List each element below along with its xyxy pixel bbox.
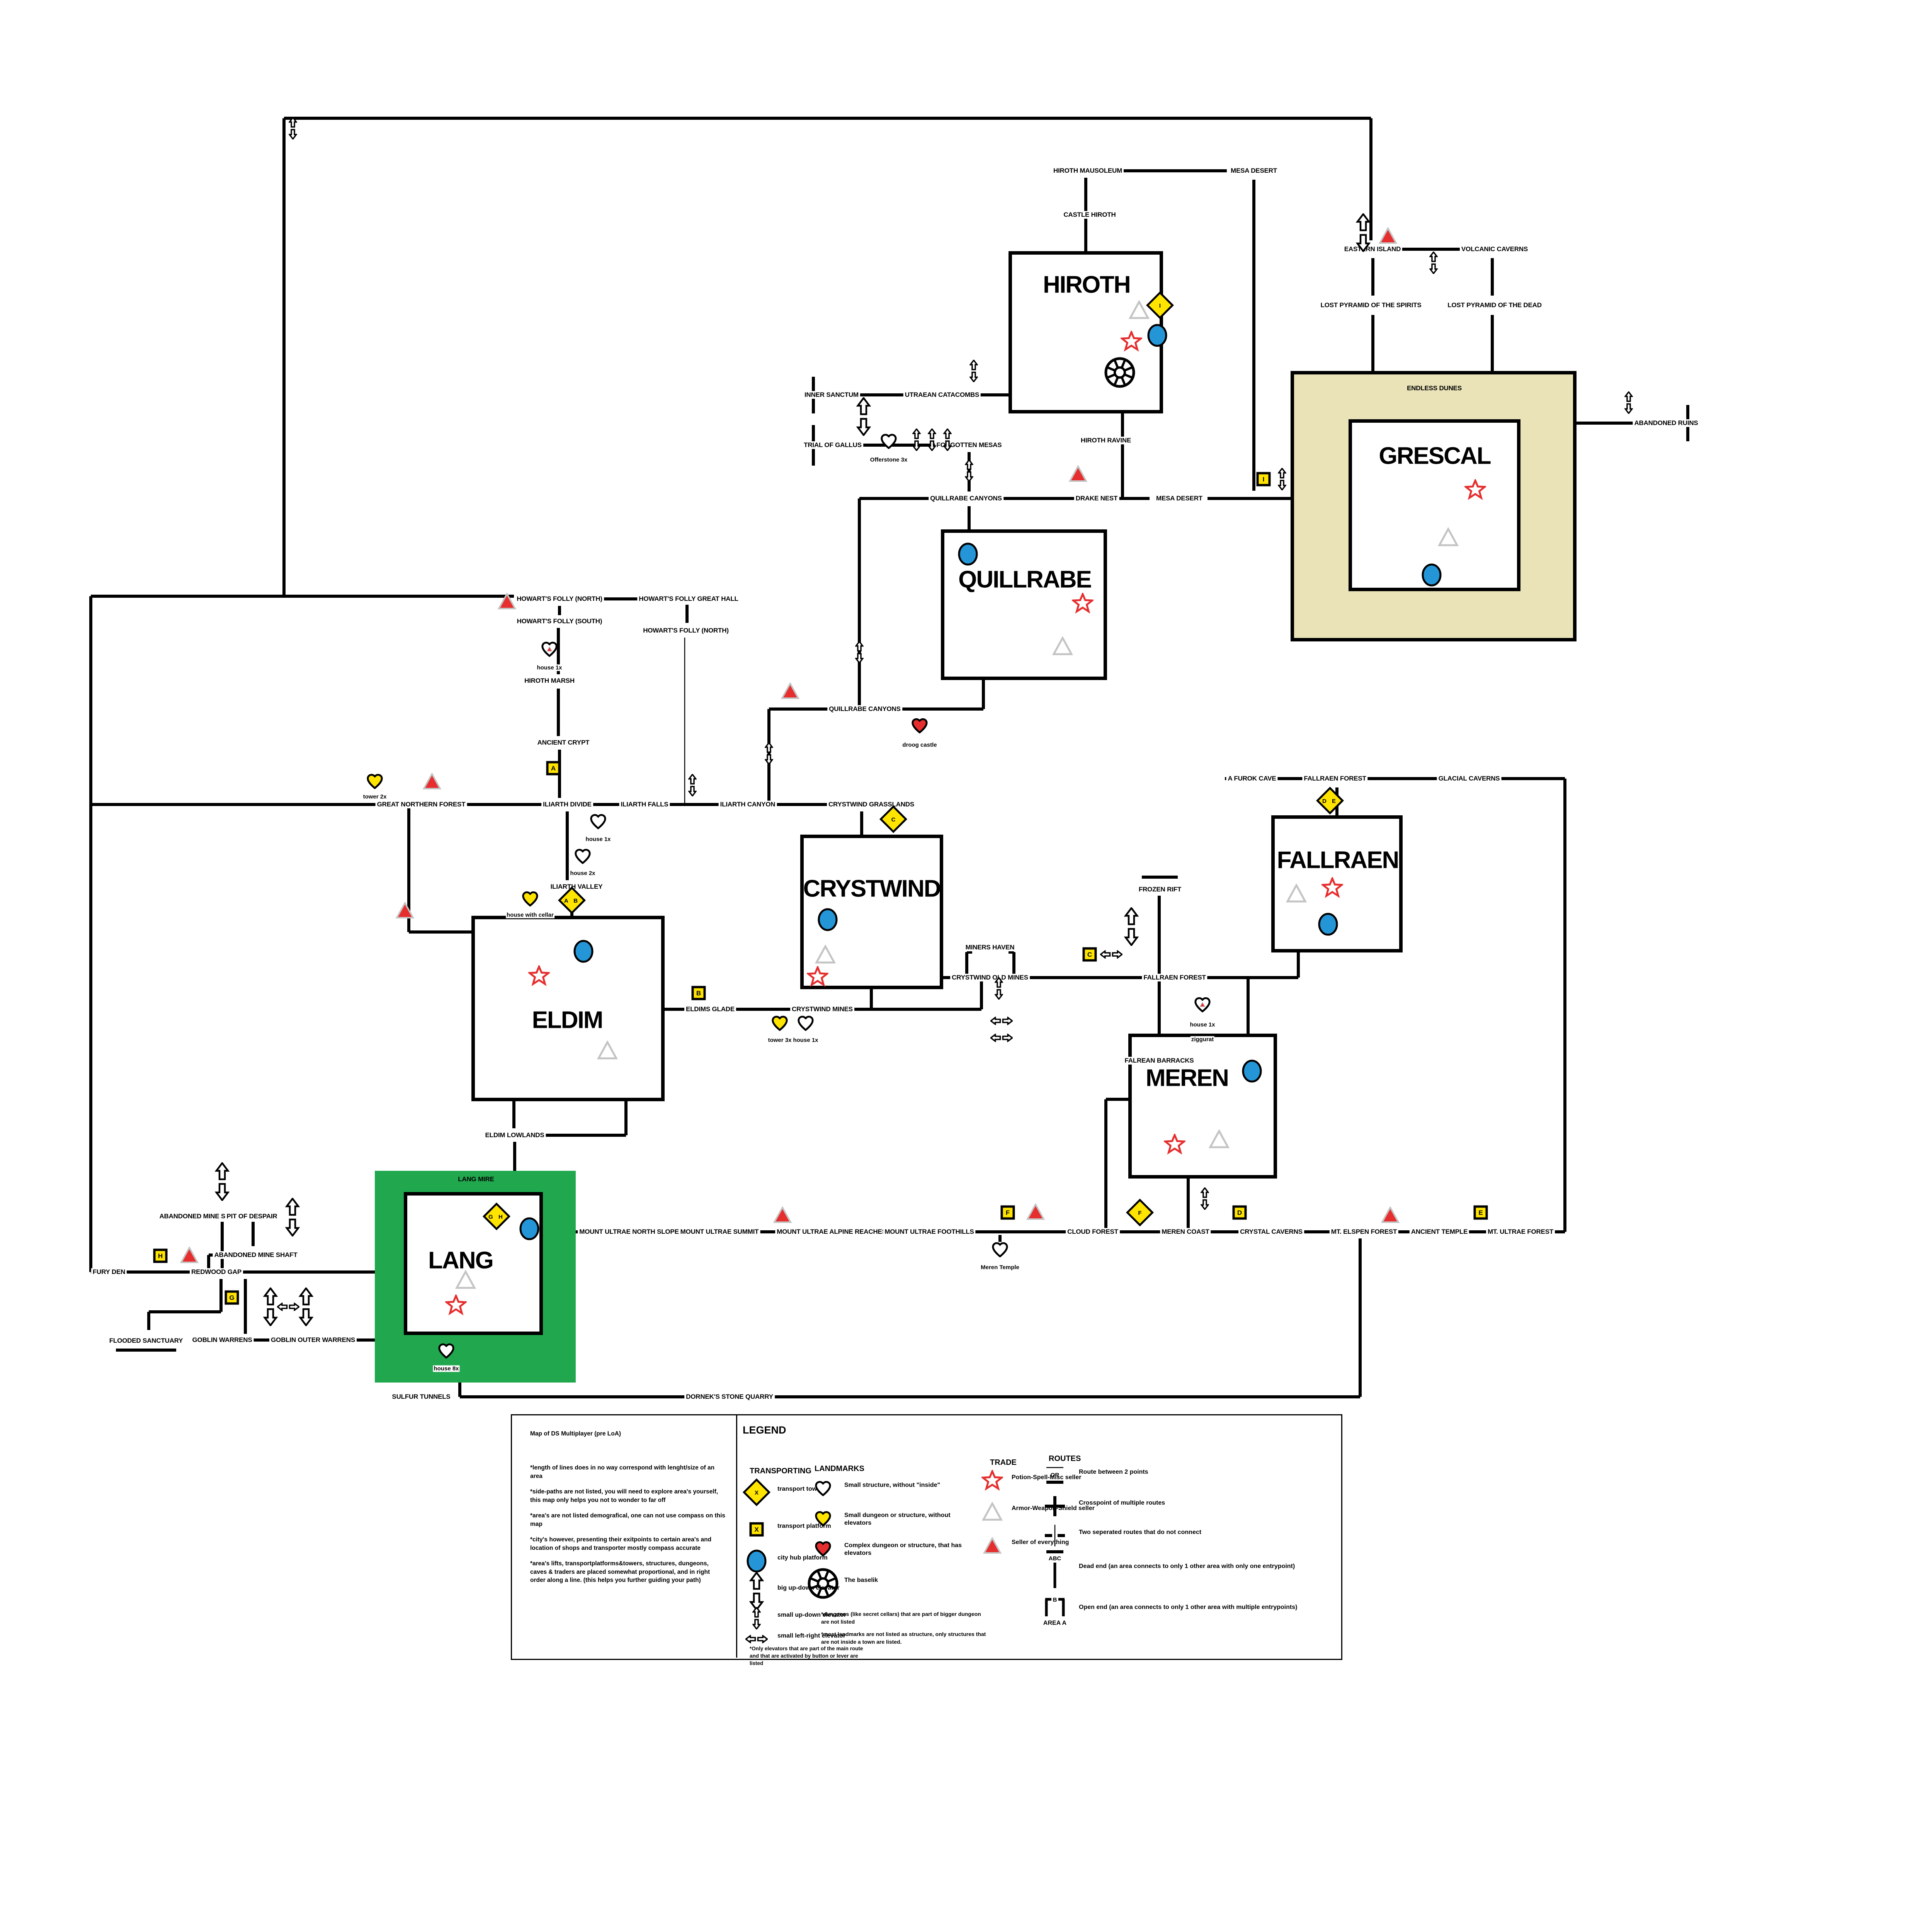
small-ud-icon: [765, 742, 773, 765]
map-label: HOWART'S FOLLY GREAT HALL: [637, 595, 740, 603]
svg-text:B: B: [696, 990, 701, 997]
map-label: LANG MIRE: [456, 1175, 496, 1183]
map-label: CASTLE HIROTH: [1062, 211, 1117, 219]
legend-title: LEGEND: [743, 1424, 786, 1436]
map-label: FALREAN BARRACKS: [1123, 1057, 1195, 1065]
legend-trade-triangle-gray-icon: [982, 1502, 1003, 1521]
svg-text:F: F: [1138, 1210, 1141, 1216]
small-ud-icon: [1278, 468, 1286, 490]
square-icon: A: [546, 761, 561, 776]
legend-trade-header: TRADE: [990, 1458, 1017, 1467]
triangle-red-icon: [1379, 227, 1397, 244]
small-lr-icon: [990, 1034, 1013, 1042]
map-label: HOWART'S FOLLY (SOUTH): [515, 617, 604, 625]
triangle-red-icon: [396, 902, 414, 919]
legend-transporting-diamond-icon: X: [742, 1478, 771, 1507]
circle-icon: [1147, 323, 1168, 347]
legend-routes-label: Open end (an area connects to only 1 oth…: [1079, 1604, 1326, 1611]
icon-label: tower 2x: [362, 794, 388, 800]
map-label: MESA DESERT: [1229, 167, 1279, 175]
svg-text:X: X: [755, 1490, 759, 1496]
icon-label: Meren Temple: [980, 1264, 1020, 1271]
world-map: LEGEND TRANSPORTING LANDMARKS TRADE ROUT…: [0, 0, 1932, 1932]
legend-trade-triangle-red-icon: [983, 1537, 1002, 1554]
legend-landmarks-label: Small dungeon or structure, without elev…: [844, 1512, 978, 1527]
svg-text:X: X: [754, 1526, 759, 1533]
legend-divider: [736, 1414, 737, 1658]
map-label: FALLRAEN FOREST: [1302, 775, 1367, 782]
diamond-icon: A B: [558, 886, 586, 915]
svg-text:A: A: [551, 765, 556, 772]
map-label: GLACIAL CAVERNS: [1437, 775, 1502, 782]
heart-white-tri-icon: [541, 640, 558, 658]
svg-text:H: H: [158, 1252, 163, 1260]
map-label: UTRAEAN CATACOMBS: [903, 391, 981, 399]
svg-text:I: I: [1159, 303, 1161, 309]
town-name-grescal: GRESCAL: [1379, 442, 1490, 470]
town-name-fallraen: FALLRAEN: [1277, 847, 1399, 874]
map-label: HIROTH RAVINE: [1079, 437, 1133, 444]
map-label: CRYSTAL CAVERNS: [1238, 1228, 1304, 1236]
icon-label: house 2x: [569, 870, 596, 877]
svg-text:D: D: [1237, 1209, 1242, 1216]
icon-label: ziggurat: [1190, 1036, 1214, 1043]
circle-icon: [817, 908, 838, 932]
map-label: QUILLRABE CANYONS: [929, 495, 1003, 502]
map-label: MOUNT ULTRAE NORTH SLOPE: [578, 1228, 680, 1236]
map-label: GOBLIN OUTER WARRENS: [269, 1336, 357, 1344]
legend-landmarks-header: LANDMARKS: [815, 1464, 864, 1473]
icon-label: house 1x: [536, 665, 563, 671]
svg-text:C: C: [891, 816, 896, 823]
diamond-icon: F: [1126, 1198, 1154, 1227]
small-ud-icon: [855, 641, 864, 663]
circle-icon: [1318, 912, 1338, 936]
star-icon: [1121, 331, 1142, 352]
square-icon: F: [1000, 1205, 1015, 1220]
map-label: A FUROK CAVE: [1226, 775, 1277, 782]
legend-transporting-small-lr-icon: [745, 1635, 768, 1643]
map-label: FALLRAEN FOREST: [1142, 974, 1207, 981]
icon-label: house 1x: [1189, 1022, 1216, 1028]
map-label: HIROTH MARSH: [523, 677, 576, 685]
legend-note: *length of lines does in no way correspo…: [530, 1464, 725, 1480]
map-label: FURY DEN: [91, 1268, 127, 1276]
triangle-red-icon: [1069, 465, 1087, 482]
triangle-red-icon: [781, 682, 799, 699]
svg-text:AREA A: AREA A: [1043, 1620, 1067, 1626]
map-label: ILIARTH CANYON: [719, 801, 777, 808]
wheel-icon: [1103, 355, 1137, 389]
big-ud-icon: [285, 1198, 300, 1236]
town-name-crystwind: CRYSTWIND: [803, 875, 940, 903]
icon-label: Offerstone 3x: [869, 457, 908, 463]
legend-routes-header: ROUTES: [1049, 1454, 1081, 1463]
svg-text:D E: D E: [1322, 798, 1338, 804]
map-label: ANCIENT CRYPT: [536, 739, 591, 747]
map-label: HOWART'S FOLLY (NORTH): [515, 595, 604, 603]
small-ud-icon: [943, 429, 952, 451]
icon-label: tower 3x: [767, 1037, 793, 1044]
small-ud-icon: [289, 117, 297, 139]
triangle-red-icon: [773, 1206, 792, 1223]
small-ud-icon: [688, 774, 697, 796]
legend-transporting-circle-icon: [746, 1549, 767, 1573]
heart-red-icon: [911, 717, 929, 735]
diamond-icon: C: [879, 805, 908, 833]
map-label: ENDLESS DUNES: [1405, 384, 1463, 392]
legend-routes-label: Route between 2 points: [1079, 1468, 1326, 1476]
legend-transporting-small-ud-icon: [752, 1607, 761, 1629]
map-label: CRYSTWIND OLD MINES: [950, 974, 1030, 981]
legend-transporting-note: *Only elevators that are part of the mai…: [750, 1645, 866, 1667]
legend-note: *area's lifts, transportplatforms&towers…: [530, 1560, 725, 1585]
svg-text:B: B: [1053, 1597, 1057, 1603]
legend-note: Map of DS Multiplayer (pre LoA): [530, 1430, 725, 1438]
map-label: MT. ELSPEN FOREST: [1330, 1228, 1398, 1236]
map-label: TRIAL OF GALLUS: [802, 441, 863, 449]
small-lr-icon: [1100, 950, 1122, 959]
legend-routes-dead-end-icon: ABC: [1043, 1549, 1066, 1590]
svg-text:G H: G H: [488, 1214, 505, 1220]
icon-label: droog castle: [901, 742, 937, 748]
legend-routes-open-end-icon: BAREA A: [1039, 1594, 1071, 1627]
triangle-gray-icon: [1286, 884, 1307, 903]
small-ud-icon: [912, 429, 921, 451]
star-icon: [1321, 877, 1343, 899]
legend-routes-route-or-icon: OR: [1043, 1465, 1067, 1485]
square-icon: E: [1473, 1205, 1488, 1220]
legend-transporting-big-ud-icon: [749, 1572, 764, 1611]
square-icon: C: [1082, 947, 1097, 962]
town-name-eldim: ELDIM: [532, 1007, 603, 1034]
map-label: REDWOOD GAP: [190, 1268, 243, 1276]
square-icon: B: [691, 986, 706, 1000]
map-label: MINERS HAVEN: [964, 944, 1016, 951]
triangle-red-icon: [1026, 1203, 1045, 1220]
map-label: MOUNT ULTRAE FOOTHILLS: [883, 1228, 975, 1236]
svg-text:OR: OR: [1051, 1472, 1060, 1478]
triangle-gray-icon: [1438, 527, 1459, 547]
town-name-meren: MEREN: [1146, 1065, 1228, 1092]
star-icon: [1464, 479, 1486, 501]
legend-landmarks-note: *dungeons (like secret cellars) that are…: [821, 1611, 987, 1626]
big-ud-icon: [856, 397, 871, 436]
map-label: GREAT NORTHERN FOREST: [376, 801, 467, 808]
legend-routes-sep-cross-icon: [1043, 1524, 1066, 1547]
circle-icon: [573, 939, 594, 963]
map-label: GOBLIN WARRENS: [191, 1336, 254, 1344]
legend-transporting-header: TRANSPORTING: [750, 1467, 811, 1476]
legend-note: *area's are not listed demografical, one…: [530, 1512, 725, 1528]
triangle-gray-icon: [815, 945, 836, 964]
star-icon: [445, 1294, 467, 1316]
legend-trade-star-icon: [981, 1470, 1003, 1492]
small-ud-icon: [1624, 391, 1633, 414]
legend-landmarks-label: Small structure, without "inside": [844, 1481, 978, 1489]
map-label: LOST PYRAMID OF THE DEAD: [1446, 301, 1543, 309]
legend-landmarks-label: Complex dungeon or structure, that has e…: [844, 1542, 978, 1557]
legend-landmarks-heart-white-icon: [814, 1480, 832, 1497]
map-label: HOWART'S FOLLY (NORTH): [641, 627, 730, 634]
triangle-gray-icon: [597, 1041, 618, 1060]
svg-text:I: I: [1263, 476, 1265, 483]
map-label: ANCIENT TEMPLE: [1410, 1228, 1469, 1236]
map-label: MOUNT ULTRAE SUMMIT: [679, 1228, 760, 1236]
svg-text:A B: A B: [564, 898, 580, 904]
map-label: QUILLRABE CANYONS: [827, 705, 902, 713]
icon-label: house 1x: [792, 1037, 819, 1044]
map-label: ILIARTH FALLS: [619, 801, 670, 808]
diamond-icon: I: [1146, 291, 1174, 320]
icon-label: house 8x: [433, 1366, 459, 1372]
map-label: PIT OF DESPAIR: [225, 1213, 279, 1220]
diamond-icon: D E: [1316, 786, 1344, 815]
star-icon: [1164, 1134, 1185, 1155]
star-icon: [528, 965, 550, 987]
small-ud-icon: [995, 977, 1003, 1000]
svg-text:G: G: [229, 1294, 234, 1301]
big-ud-icon: [1356, 213, 1371, 252]
heart-yellow-icon: [771, 1014, 789, 1032]
map-label: MEREN COAST: [1160, 1228, 1211, 1236]
map-label: INNER SANCTUM: [803, 391, 860, 399]
svg-text:C: C: [1087, 951, 1092, 958]
triangle-red-icon: [180, 1247, 199, 1264]
small-lr-icon: [990, 1017, 1013, 1025]
town-name-hiroth: HIROTH: [1043, 271, 1130, 299]
heart-yellow-icon: [521, 890, 539, 908]
map-label: CRYSTWIND MINES: [790, 1005, 854, 1013]
town-box-meren: [1128, 1034, 1277, 1179]
town-name-quillrabe: QUILLRABE: [958, 566, 1091, 594]
heart-white-icon: [797, 1014, 815, 1032]
triangle-gray-icon: [1052, 636, 1073, 656]
map-label: DRAKE NEST: [1074, 495, 1119, 502]
big-ud-icon: [215, 1162, 230, 1201]
map-label: CLOUD FOREST: [1066, 1228, 1120, 1236]
map-label: VOLCANIC CAVERNS: [1460, 245, 1529, 253]
big-ud-icon: [1124, 907, 1139, 946]
map-label: MESA DESERT: [1155, 495, 1204, 502]
map-label: ELDIMS GLADE: [684, 1005, 736, 1013]
circle-icon: [519, 1217, 540, 1241]
map-label: ABANDONED MINE SHAFT: [213, 1251, 299, 1259]
square-icon: D: [1232, 1205, 1247, 1220]
small-ud-icon: [965, 459, 973, 482]
svg-text:E: E: [1478, 1209, 1483, 1216]
diamond-icon: G H: [482, 1202, 511, 1231]
legend-landmarks-heart-yellow-icon: [814, 1510, 832, 1527]
small-ud-icon: [1201, 1187, 1209, 1210]
heart-white-icon: [880, 432, 898, 450]
map-label: MOUNT ULTRAE ALPINE REACHES: [775, 1228, 888, 1236]
map-label: FLOODED SANCTUARY: [108, 1337, 185, 1345]
triangle-red-icon: [423, 773, 441, 790]
heart-white-icon: [437, 1342, 455, 1360]
star-icon: [1072, 593, 1094, 614]
circle-icon: [1242, 1059, 1262, 1083]
small-ud-icon: [1429, 252, 1438, 274]
icon-label: house with cellar: [506, 912, 554, 918]
triangle-gray-icon: [455, 1270, 476, 1289]
map-label: EASTERN ISLAND: [1343, 245, 1402, 253]
legend-landmarks-label: The baselik: [844, 1577, 978, 1584]
big-ud-icon: [263, 1287, 278, 1326]
legend-note: *city's however, presenting their exitpo…: [530, 1536, 725, 1552]
legend-routes-cross-icon: [1043, 1495, 1066, 1518]
legend-note: *side-paths are not listed, you will nee…: [530, 1488, 725, 1504]
heart-yellow-icon: [366, 772, 384, 790]
triangle-gray-icon: [1209, 1129, 1230, 1149]
svg-text:ABC: ABC: [1049, 1555, 1061, 1562]
big-ud-icon: [299, 1287, 313, 1326]
map-label: ILIARTH DIVIDE: [541, 801, 593, 808]
legend-transporting-square-icon: X: [749, 1522, 764, 1537]
heart-white-tri-icon: [1194, 996, 1211, 1014]
legend-routes-label: Dead end (an area connects to only 1 oth…: [1079, 1563, 1326, 1570]
map-label: ABANDONED RUINS: [1633, 419, 1699, 427]
triangle-red-icon: [498, 593, 516, 610]
circle-icon: [1421, 563, 1442, 587]
map-label: SULFUR TUNNELS: [390, 1393, 452, 1401]
legend-landmarks-note: *most landmarks are not listed as struct…: [821, 1631, 987, 1646]
star-icon: [807, 966, 828, 988]
map-label: DORNEK'S STONE QUARRY: [684, 1393, 775, 1401]
icon-label: house 1x: [585, 836, 611, 843]
legend-landmarks-heart-red-icon: [814, 1540, 832, 1558]
small-ud-icon: [969, 360, 978, 382]
svg-text:F: F: [1006, 1209, 1010, 1216]
heart-white-icon: [991, 1241, 1009, 1259]
legend-routes-label: Crosspoint of multiple routes: [1079, 1499, 1326, 1507]
heart-white-icon: [589, 813, 607, 830]
small-ud-icon: [928, 429, 936, 451]
legend-landmarks-wheel-icon: [806, 1566, 840, 1600]
square-icon: I: [1256, 472, 1271, 486]
heart-white-icon: [574, 847, 592, 865]
map-label: MT. ULTRAE FOREST: [1486, 1228, 1555, 1236]
triangle-red-icon: [1381, 1206, 1400, 1223]
small-lr-icon: [277, 1303, 299, 1311]
map-label: LOST PYRAMID OF THE SPIRITS: [1319, 301, 1423, 309]
map-label: ELDIM LOWLANDS: [483, 1131, 546, 1139]
map-label: FROZEN RIFT: [1137, 886, 1183, 893]
square-icon: G: [224, 1290, 239, 1305]
square-icon: H: [153, 1248, 168, 1263]
map-label: HIROTH MAUSOLEUM: [1052, 167, 1124, 175]
circle-icon: [957, 542, 978, 566]
legend-routes-label: Two seperated routes that do not connect: [1079, 1529, 1326, 1536]
